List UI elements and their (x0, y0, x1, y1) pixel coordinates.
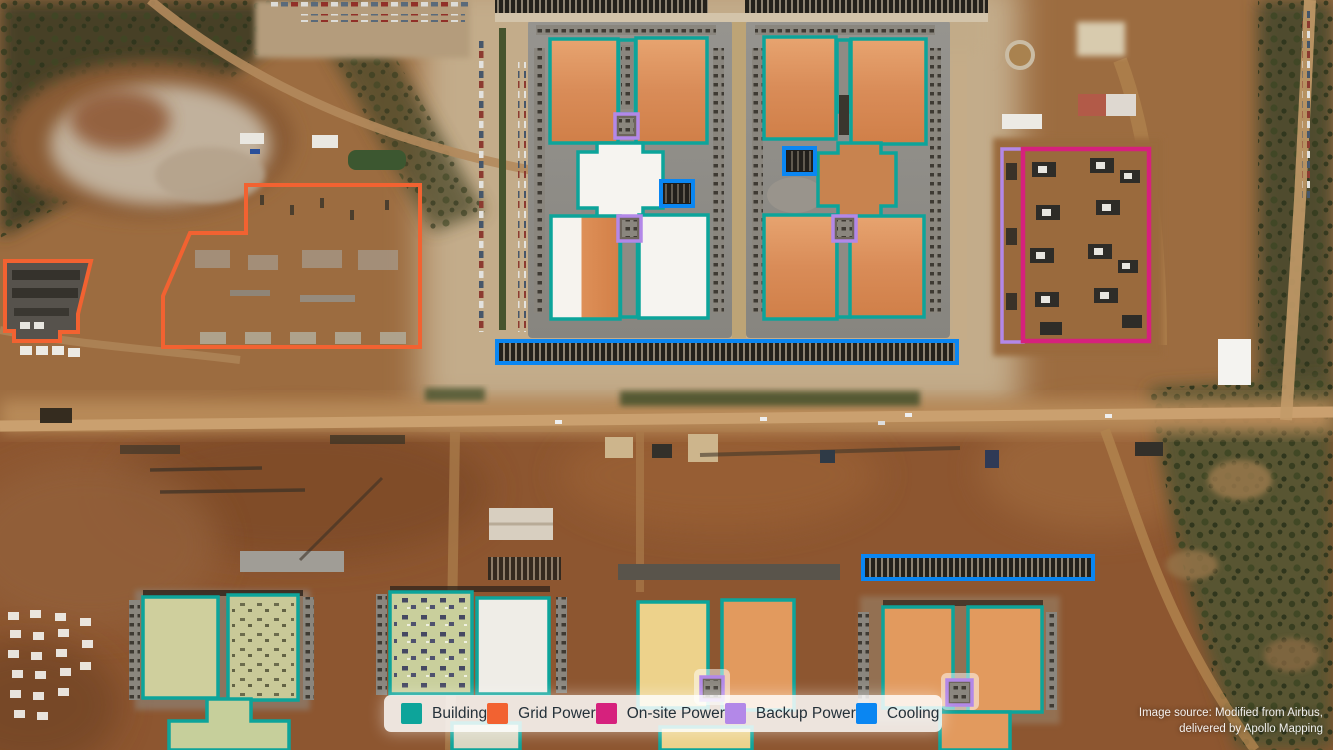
datacenter-hall (551, 216, 620, 319)
legend-label: Building (432, 705, 487, 723)
datacenter-hall (851, 39, 926, 144)
attribution-line-2: delivered by Apollo Mapping (1139, 721, 1323, 737)
grid-power-color-swatch-icon (487, 703, 508, 724)
datacenter-hall-construction (722, 600, 794, 710)
cooling-row-top-left (495, 0, 708, 13)
legend-item-cooling: Cooling (856, 703, 940, 724)
building-color-swatch-icon (401, 703, 422, 724)
central-admin-building (578, 143, 663, 217)
legend-item-onsite-power: On-site Power (596, 703, 725, 724)
datacenter-hall (849, 216, 924, 317)
datacenter-hall-construction (143, 597, 218, 698)
backup-power-color-swatch-icon (725, 703, 746, 724)
attribution-line-1: Image source: Modified from Airbus, (1139, 705, 1323, 721)
legend-label: On-site Power (627, 705, 725, 723)
datacenter-hall-construction (968, 607, 1042, 712)
legend-item-building: Building (401, 703, 487, 724)
legend-label: Cooling (887, 705, 940, 723)
datacenter-hall-construction (477, 598, 549, 694)
onsite-power-yard (993, 138, 1163, 356)
image-attribution: Image source: Modified from Airbus, deli… (1139, 705, 1323, 737)
datacenter-hall (550, 39, 618, 143)
central-pad (818, 143, 896, 217)
legend-item-backup-power: Backup Power (725, 703, 856, 724)
legend-label: Backup Power (756, 705, 856, 723)
map-legend: Building Grid Power On-site Power Backup… (384, 695, 942, 732)
datacenter-hall (639, 215, 708, 318)
legend-label: Grid Power (518, 705, 596, 723)
legend-item-grid-power: Grid Power (487, 703, 596, 724)
datacenter-hall (764, 215, 837, 319)
datacenter-hall (636, 38, 707, 143)
satellite-image (0, 0, 1333, 750)
datacenter-hall (764, 37, 836, 139)
annotated-satellite-view: Building Grid Power On-site Power Backup… (0, 0, 1333, 750)
central-building-construction (940, 712, 1010, 750)
onsite-power-color-swatch-icon (596, 703, 617, 724)
cooling-color-swatch-icon (856, 703, 877, 724)
utility-spine (621, 241, 638, 317)
utility-spine (837, 241, 850, 317)
cooling-row-top-right (745, 0, 988, 13)
